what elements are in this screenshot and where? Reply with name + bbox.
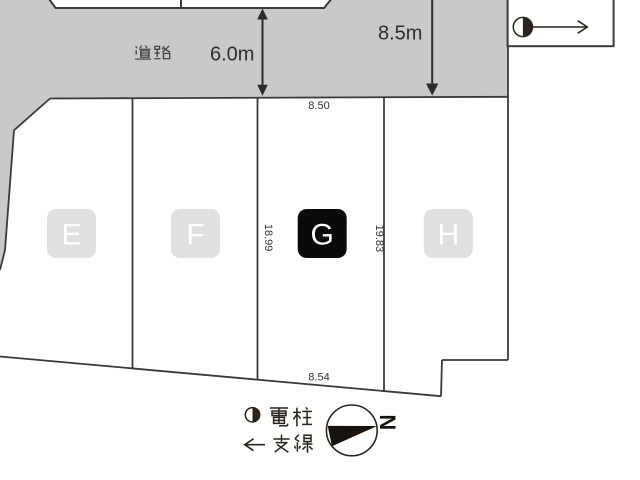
svg-text:G: G: [311, 219, 334, 252]
svg-text:19.83: 19.83: [373, 225, 385, 253]
svg-text:H: H: [437, 219, 459, 252]
svg-text:E: E: [61, 219, 81, 252]
svg-text:8.5m: 8.5m: [378, 23, 422, 45]
svg-text:18.99: 18.99: [262, 224, 274, 252]
svg-text:8.50: 8.50: [308, 100, 329, 112]
svg-text:8.54: 8.54: [308, 372, 329, 384]
svg-text:N: N: [375, 414, 400, 430]
svg-text:6.0m: 6.0m: [210, 44, 254, 66]
svg-text:F: F: [186, 219, 204, 252]
